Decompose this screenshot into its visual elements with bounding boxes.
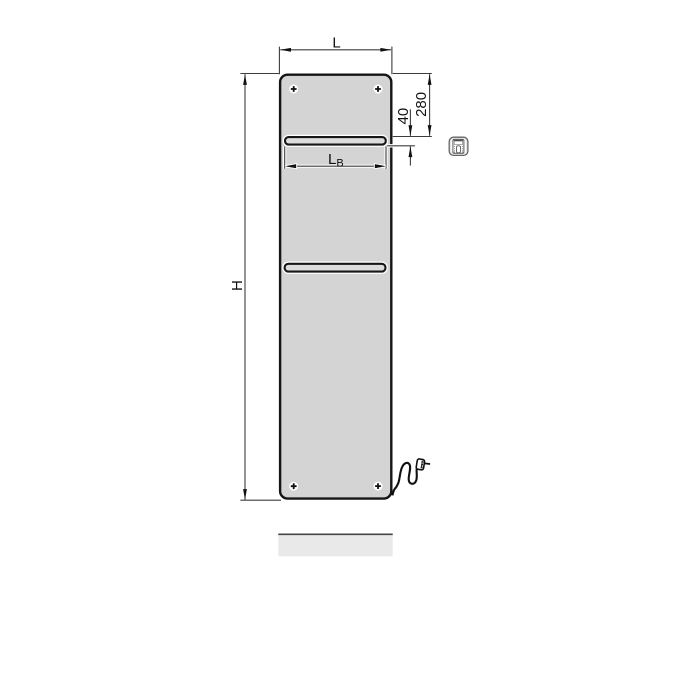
svg-text:L: L xyxy=(332,34,340,51)
svg-text:280: 280 xyxy=(413,92,430,117)
svg-text:H: H xyxy=(229,280,246,291)
svg-text:40: 40 xyxy=(395,108,412,125)
